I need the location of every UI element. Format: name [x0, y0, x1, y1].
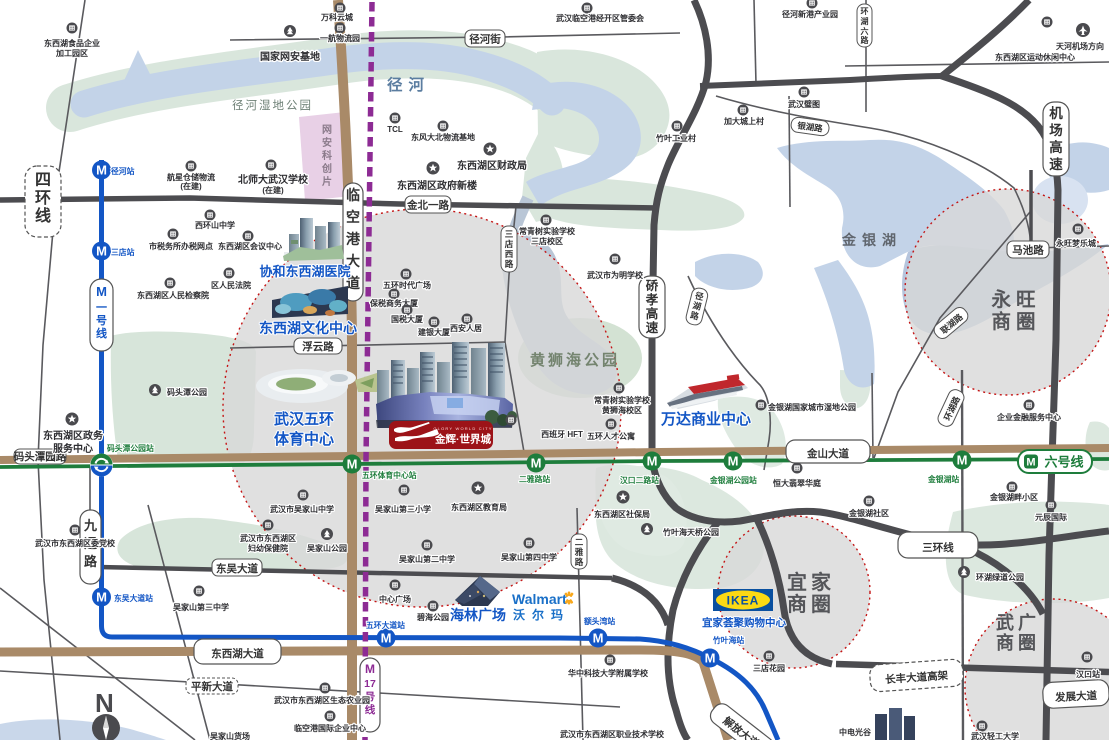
- svg-text:二: 二: [575, 537, 584, 547]
- svg-text:武汉五环: 武汉五环: [274, 410, 334, 428]
- svg-text:六: 六: [861, 26, 869, 36]
- svg-text:国家网安基地: 国家网安基地: [260, 50, 320, 63]
- svg-text:三店花园: 三店花园: [753, 663, 785, 673]
- svg-text:商圈: 商圈: [787, 592, 835, 616]
- svg-text:一航物流园: 一航物流园: [320, 33, 360, 43]
- svg-text:西安人居: 西安人居: [450, 323, 482, 333]
- svg-text:线: 线: [96, 326, 107, 340]
- svg-text:建银大厦: 建银大厦: [417, 327, 451, 337]
- svg-text:高: 高: [646, 306, 659, 321]
- svg-text:N: N: [95, 688, 114, 718]
- svg-text:加大城上村: 加大城上村: [723, 116, 764, 126]
- svg-text:西: 西: [505, 249, 514, 259]
- svg-text:北师大武汉学校: 北师大武汉学校: [238, 173, 309, 186]
- svg-text:东西湖区政府新楼: 东西湖区政府新楼: [397, 179, 477, 192]
- svg-text:Walmart: Walmart: [512, 591, 567, 607]
- svg-text:东西湖大道: 东西湖大道: [211, 647, 264, 660]
- svg-text:中心广场: 中心广场: [379, 594, 411, 604]
- svg-text:金银湖国家城市湿地公园: 金银湖国家城市湿地公园: [767, 402, 856, 412]
- svg-text:九: 九: [83, 518, 97, 533]
- svg-text:恒大翡翠华庭: 恒大翡翠华庭: [773, 478, 822, 488]
- svg-text:店: 店: [504, 239, 514, 249]
- svg-text:临: 临: [346, 187, 360, 203]
- svg-text:三: 三: [505, 229, 514, 239]
- svg-text:二雅路站: 二雅路站: [519, 474, 550, 484]
- svg-text:元辰国际: 元辰国际: [1035, 512, 1067, 522]
- svg-text:三环线: 三环线: [922, 541, 954, 554]
- svg-text:吴家山第四中学: 吴家山第四中学: [501, 552, 557, 562]
- svg-text:金银湖站: 金银湖站: [927, 474, 959, 484]
- svg-text:四: 四: [35, 172, 51, 189]
- svg-text:武汉市东西湖区委党校: 武汉市东西湖区委党校: [35, 538, 116, 548]
- svg-text:企业金融服务中心: 企业金融服务中心: [996, 412, 1061, 422]
- svg-text:速: 速: [646, 320, 659, 335]
- svg-text:发展大道: 发展大道: [1054, 689, 1098, 704]
- svg-text:竹叶海站: 竹叶海站: [712, 635, 744, 645]
- svg-text:金银湖公园站: 金银湖公园站: [709, 475, 757, 485]
- svg-text:武汉临空港经开区管委会: 武汉临空港经开区管委会: [556, 13, 644, 23]
- svg-text:吴家山公园: 吴家山公园: [307, 543, 347, 553]
- svg-text:金山大道: 金山大道: [806, 447, 849, 460]
- svg-text:汉口站: 汉口站: [1076, 669, 1100, 679]
- svg-text:宜家荟聚购物中心: 宜家荟聚购物中心: [702, 616, 786, 629]
- svg-text:17: 17: [364, 678, 376, 690]
- svg-text:体育中心: 体育中心: [274, 430, 334, 448]
- svg-text:雅: 雅: [574, 547, 584, 557]
- svg-text:径河站: 径河站: [111, 166, 135, 176]
- svg-text:东西湖区政务: 东西湖区政务: [43, 429, 104, 442]
- svg-text:吴家山第三小学: 吴家山第三小学: [375, 504, 431, 514]
- svg-text:武汉市东西湖区生态农业园: 武汉市东西湖区生态农业园: [274, 695, 370, 705]
- svg-text:华中科技大学附属学校: 华中科技大学附属学校: [568, 668, 649, 678]
- svg-text:航星仓储物流: 航星仓储物流: [167, 172, 215, 182]
- svg-text:服务中心: 服务中心: [53, 442, 93, 455]
- svg-text:竹叶海天桥公园: 竹叶海天桥公园: [662, 527, 719, 537]
- svg-text:平新大道: 平新大道: [191, 680, 233, 693]
- svg-text:径河: 径河: [387, 75, 430, 94]
- svg-text:万达商业中心: 万达商业中心: [660, 410, 751, 428]
- svg-text:(在建): (在建): [262, 185, 284, 195]
- svg-text:港: 港: [346, 231, 361, 247]
- svg-text:TCL: TCL: [387, 125, 403, 134]
- svg-text:武广: 武广: [996, 612, 1040, 633]
- svg-text:三店站: 三店站: [111, 247, 135, 257]
- svg-text:五环人才公寓: 五环人才公寓: [587, 431, 635, 441]
- svg-text:永旺: 永旺: [990, 288, 1040, 311]
- svg-text:三店校区: 三店校区: [531, 236, 563, 246]
- svg-text:高: 高: [1049, 139, 1063, 155]
- svg-text:M: M: [96, 284, 107, 299]
- svg-text:码头潭公园: 码头潭公园: [167, 387, 207, 397]
- svg-text:碧海公园: 碧海公园: [416, 612, 449, 622]
- svg-text:武汉市东西湖区: 武汉市东西湖区: [240, 533, 296, 543]
- svg-text:武汉轻工大学: 武汉轻工大学: [971, 731, 1019, 740]
- svg-text:加工园区: 加工园区: [55, 48, 88, 58]
- svg-text:宜家: 宜家: [787, 570, 835, 594]
- svg-text:金辉·世界城: 金辉·世界城: [434, 433, 491, 446]
- svg-text:吴家山第三中学: 吴家山第三中学: [173, 602, 229, 612]
- svg-text:东西湖区运动休闲中心: 东西湖区运动休闲中心: [995, 52, 1075, 62]
- svg-text:M: M: [365, 662, 375, 676]
- svg-text:商圈: 商圈: [991, 310, 1040, 333]
- svg-text:国税大厦: 国税大厦: [391, 314, 424, 324]
- svg-text:常青树实验学校: 常青树实验学校: [519, 226, 576, 236]
- svg-text:速: 速: [1049, 156, 1063, 172]
- svg-text:环湖绿道公园: 环湖绿道公园: [976, 572, 1024, 582]
- svg-text:永旺梦乐城: 永旺梦乐城: [1055, 238, 1096, 248]
- svg-text:武汉市东西湖区职业技术学校: 武汉市东西湖区职业技术学校: [560, 729, 665, 739]
- svg-text:东西湖文化中心: 东西湖文化中心: [259, 320, 357, 336]
- svg-text:六号线: 六号线: [1044, 455, 1083, 470]
- svg-text:路: 路: [505, 259, 514, 269]
- svg-text:竹叶工业村: 竹叶工业村: [655, 133, 696, 143]
- svg-text:武汉市为明学校: 武汉市为明学校: [587, 270, 644, 280]
- svg-text:安: 安: [322, 136, 332, 149]
- svg-text:中电光谷: 中电光谷: [839, 727, 872, 737]
- svg-text:(在建): (在建): [180, 181, 202, 191]
- svg-text:西环山中学: 西环山中学: [195, 220, 235, 230]
- svg-text:M: M: [1026, 457, 1035, 469]
- svg-text:片: 片: [322, 175, 332, 188]
- svg-text:东西湖区教育局: 东西湖区教育局: [451, 502, 507, 512]
- svg-text:湖: 湖: [861, 16, 869, 26]
- svg-text:五环大道站: 五环大道站: [366, 620, 405, 630]
- svg-text:吴家山货场: 吴家山货场: [210, 731, 250, 740]
- svg-text:浮云路: 浮云路: [302, 340, 334, 353]
- svg-text:径河新港产业园: 径河新港产业园: [782, 9, 838, 19]
- svg-text:金银湖: 金银湖: [841, 232, 902, 248]
- svg-text:协和东西湖医院: 协和东西湖医院: [259, 264, 350, 279]
- svg-text:武汉市吴家山中学: 武汉市吴家山中学: [270, 504, 334, 514]
- svg-text:市税务所办税网点: 市税务所办税网点: [149, 241, 213, 251]
- svg-text:五环时代广场: 五环时代广场: [383, 280, 431, 290]
- svg-text:IKEA: IKEA: [727, 594, 760, 608]
- svg-text:保税商务大厦: 保税商务大厦: [369, 298, 419, 308]
- svg-text:环: 环: [861, 7, 869, 16]
- svg-text:西班牙 HFT: 西班牙 HFT: [541, 429, 583, 439]
- svg-text:径河街: 径河街: [469, 33, 501, 46]
- svg-text:空: 空: [346, 209, 360, 225]
- svg-text:码头潭公园站: 码头潭公园站: [107, 443, 154, 453]
- svg-text:吴家山第二中学: 吴家山第二中学: [399, 554, 455, 564]
- svg-text:东吴大道: 东吴大道: [216, 562, 258, 575]
- svg-text:一: 一: [96, 302, 107, 314]
- svg-text:区人民法院: 区人民法院: [211, 280, 251, 290]
- svg-text:黄狮海校区: 黄狮海校区: [602, 405, 642, 415]
- svg-text:额头湾站: 额头湾站: [584, 616, 615, 626]
- svg-text:路: 路: [575, 557, 584, 567]
- svg-text:径河湿地公园: 径河湿地公园: [232, 99, 313, 112]
- svg-text:硚: 硚: [646, 278, 659, 293]
- svg-text:东吴大道站: 东吴大道站: [114, 593, 153, 603]
- svg-text:孝: 孝: [645, 292, 659, 307]
- svg-text:机: 机: [1049, 105, 1063, 121]
- svg-text:东西湖区财政局: 东西湖区财政局: [457, 159, 527, 172]
- svg-text:万科云城: 万科云城: [320, 12, 353, 22]
- svg-text:妇幼保健院: 妇幼保健院: [247, 543, 288, 553]
- svg-text:科: 科: [322, 149, 332, 162]
- svg-text:商圈: 商圈: [996, 632, 1040, 653]
- svg-text:金银湖畔小区: 金银湖畔小区: [989, 492, 1038, 502]
- svg-text:临空港国际企业中心: 临空港国际企业中心: [294, 723, 366, 733]
- svg-text:金北一路: 金北一路: [406, 199, 449, 212]
- svg-text:创: 创: [321, 162, 332, 175]
- svg-text:东风大北物流基地: 东风大北物流基地: [411, 132, 475, 142]
- svg-text:网: 网: [322, 124, 332, 136]
- svg-text:线: 线: [35, 206, 51, 225]
- svg-text:东西湖区会议中心: 东西湖区会议中心: [218, 241, 282, 251]
- svg-text:天河机场方向: 天河机场方向: [1056, 41, 1104, 51]
- svg-text:东西湖食品企业: 东西湖食品企业: [44, 38, 100, 48]
- svg-text:路: 路: [861, 35, 870, 45]
- svg-text:黄狮海公园: 黄狮海公园: [530, 351, 620, 369]
- svg-text:海林广场: 海林广场: [450, 607, 506, 623]
- svg-text:五环体育中心站: 五环体育中心站: [362, 470, 417, 480]
- svg-text:武汉璧图: 武汉璧图: [788, 99, 820, 109]
- svg-text:场: 场: [1049, 123, 1063, 138]
- svg-text:环: 环: [35, 189, 51, 207]
- svg-text:东西湖区社保局: 东西湖区社保局: [594, 509, 650, 519]
- svg-text:号: 号: [96, 314, 107, 327]
- svg-text:路: 路: [84, 554, 98, 569]
- svg-text:沃尔玛: 沃尔玛: [513, 607, 570, 622]
- svg-text:常青树实验学校: 常青树实验学校: [594, 395, 651, 405]
- svg-text:金银湖社区: 金银湖社区: [848, 508, 889, 518]
- svg-text:东西湖区人民检察院: 东西湖区人民检察院: [137, 290, 209, 300]
- svg-text:汉口二路站: 汉口二路站: [620, 475, 659, 485]
- svg-text:马池路: 马池路: [1012, 244, 1044, 257]
- svg-text:GLORY WORLD CITY: GLORY WORLD CITY: [433, 426, 492, 431]
